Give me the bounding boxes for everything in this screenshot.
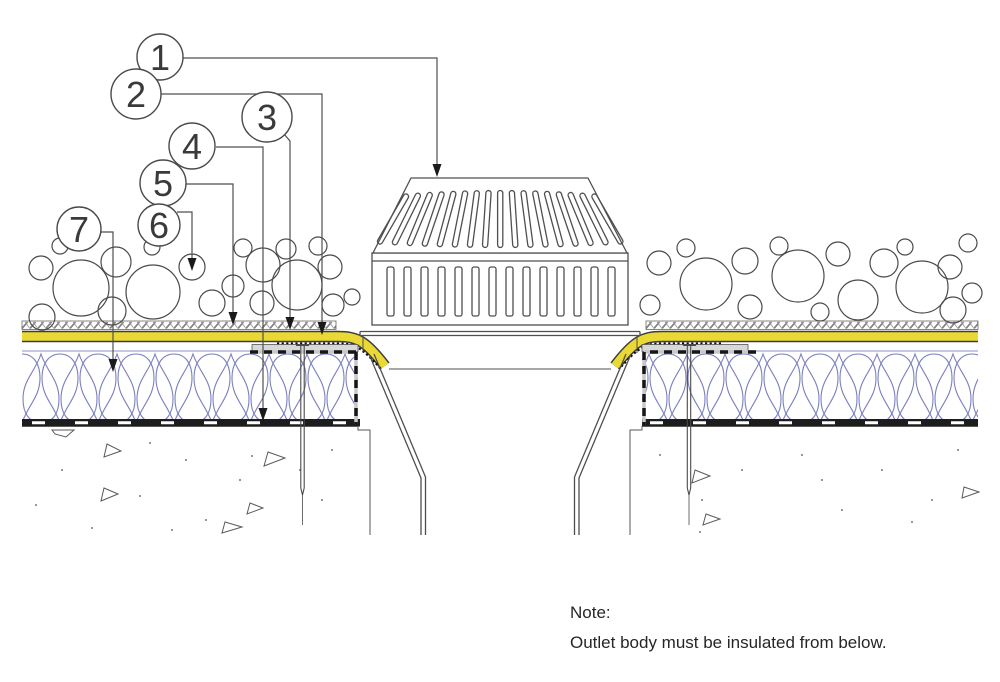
aggregate-triangle bbox=[703, 514, 720, 525]
gravel-stone bbox=[772, 250, 824, 302]
gravel-stone bbox=[838, 280, 878, 320]
gravel-stone bbox=[938, 255, 962, 279]
callout-bubbles: 1 2 3 4 5 6 7 bbox=[57, 34, 292, 251]
gravel-stone bbox=[738, 295, 762, 319]
speckle-dot bbox=[149, 442, 151, 444]
gravel-stone bbox=[640, 295, 660, 315]
gravel-stone bbox=[959, 234, 977, 252]
callout-6-arrow bbox=[188, 258, 197, 271]
speckle-dot bbox=[331, 449, 333, 451]
aggregate-triangle bbox=[222, 522, 242, 533]
callout-7: 7 bbox=[57, 207, 101, 251]
callout-4: 4 bbox=[169, 123, 215, 169]
gravel-stone bbox=[770, 237, 788, 255]
concrete-deck-left bbox=[22, 427, 370, 536]
roof-outlet bbox=[360, 178, 640, 535]
callout-5-leader bbox=[186, 184, 233, 312]
gravel-stone bbox=[940, 297, 966, 323]
gravel-stone bbox=[199, 290, 225, 316]
callout-1-arrow bbox=[433, 164, 442, 177]
gravel-stone bbox=[29, 256, 53, 280]
note-block: Note: Outlet body must be insulated from… bbox=[570, 599, 887, 656]
speckle-dot bbox=[821, 479, 823, 481]
callout-1-number: 1 bbox=[150, 37, 170, 78]
vapor-barrier-layer bbox=[642, 419, 978, 427]
callout-6: 6 bbox=[138, 204, 180, 246]
right-roof-buildup bbox=[615, 234, 982, 535]
gravel-stone bbox=[897, 239, 913, 255]
gravel-stone bbox=[309, 237, 327, 255]
speckle-dot bbox=[957, 449, 959, 451]
vapor-barrier-layer bbox=[22, 419, 360, 427]
gravel-stone bbox=[250, 291, 274, 315]
callout-3-leader bbox=[284, 134, 290, 317]
aggregate-triangle bbox=[264, 452, 285, 466]
speckle-dot bbox=[91, 527, 93, 529]
roof-drain-detail-diagram: 1 2 3 4 5 6 7 Note: Outlet body must be … bbox=[0, 0, 1000, 682]
callout-7-number: 7 bbox=[69, 209, 89, 250]
separation-fleece-layer bbox=[646, 321, 978, 330]
speckle-dot bbox=[911, 521, 913, 523]
gravel-stone bbox=[896, 261, 948, 313]
aggregate-triangle bbox=[962, 487, 979, 498]
callout-2-number: 2 bbox=[126, 74, 146, 115]
insulation-layer bbox=[22, 352, 358, 425]
outlet-funnel bbox=[363, 335, 637, 535]
gravel-stone bbox=[811, 303, 829, 321]
aggregate-triangle bbox=[104, 444, 121, 457]
speckle-dot bbox=[801, 454, 803, 456]
speckle-dot bbox=[185, 459, 187, 461]
concrete-aggregate bbox=[101, 444, 285, 533]
callout-5: 5 bbox=[140, 160, 186, 206]
note-label: Note: bbox=[570, 599, 887, 627]
concrete-speckles bbox=[35, 442, 333, 531]
aggregate-triangle bbox=[247, 503, 263, 514]
gravel-stone bbox=[53, 260, 109, 316]
insulation-layer bbox=[642, 352, 978, 425]
concrete-chip bbox=[52, 430, 74, 437]
grate-top bbox=[373, 178, 627, 253]
gravel-stone bbox=[680, 258, 732, 310]
aggregate-triangle bbox=[692, 470, 710, 483]
callout-5-number: 5 bbox=[153, 163, 173, 204]
speckle-dot bbox=[171, 529, 173, 531]
callout-3: 3 bbox=[242, 92, 292, 142]
gravel-stone bbox=[826, 242, 850, 266]
callout-2: 2 bbox=[111, 69, 161, 119]
aggregate-triangle bbox=[101, 488, 118, 501]
gravel-stone bbox=[272, 260, 322, 310]
concrete-outline bbox=[630, 427, 978, 536]
speckle-dot bbox=[931, 499, 933, 501]
gravel-stone bbox=[276, 239, 296, 259]
gravel-stone bbox=[101, 247, 131, 277]
speckle-dot bbox=[741, 469, 743, 471]
concrete-aggregate bbox=[692, 470, 979, 525]
speckle-dot bbox=[61, 469, 63, 471]
callout-6-number: 6 bbox=[149, 205, 169, 246]
speckle-dot bbox=[35, 504, 37, 506]
gravel-stone bbox=[344, 289, 360, 305]
speckle-dot bbox=[321, 499, 323, 501]
speckle-dot bbox=[205, 519, 207, 521]
gravel-stone bbox=[677, 239, 695, 257]
speckle-dot bbox=[701, 499, 703, 501]
callout-4-number: 4 bbox=[182, 126, 202, 167]
grate-base-plate bbox=[360, 332, 640, 336]
gravel-stone bbox=[732, 248, 758, 274]
speckle-dot bbox=[699, 531, 701, 533]
gravel-stone bbox=[870, 249, 898, 277]
gravel-ballast-right bbox=[640, 234, 982, 323]
gravel-stone bbox=[322, 294, 344, 316]
speckle-dot bbox=[881, 469, 883, 471]
callout-1-leader bbox=[182, 58, 437, 164]
speckle-dot bbox=[841, 509, 843, 511]
left-roof-buildup bbox=[22, 237, 385, 535]
note-text: Outlet body must be insulated from below… bbox=[570, 629, 887, 657]
grate-band bbox=[372, 253, 628, 325]
detail-drawing: 1 2 3 4 5 6 7 bbox=[0, 0, 1000, 682]
speckle-dot bbox=[139, 495, 141, 497]
gravel-stone bbox=[962, 283, 982, 303]
speckle-dot bbox=[659, 454, 661, 456]
gravel-stone bbox=[126, 265, 180, 319]
callout-3-number: 3 bbox=[257, 97, 277, 138]
speckle-dot bbox=[251, 455, 253, 457]
concrete-outline bbox=[22, 427, 370, 536]
speckle-dot bbox=[239, 479, 241, 481]
gravel-stone bbox=[647, 251, 671, 275]
concrete-deck-right bbox=[630, 427, 979, 536]
